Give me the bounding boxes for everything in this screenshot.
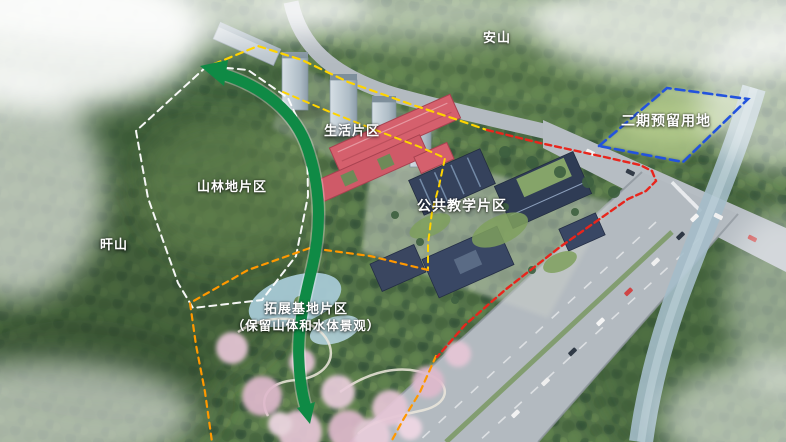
label-expansion-zone-title: 拓展基地片区 [232, 300, 381, 318]
campus-masterplan-aerial-rendering: 安山 二期预留用地 生活片区 山林地片区 旰山 公共教学片区 拓展基地片区 （保… [0, 0, 786, 442]
masterplan-scene [0, 0, 786, 442]
label-mountain-ganshan: 旰山 [100, 236, 128, 254]
label-mountain-anshan: 安山 [483, 29, 511, 47]
label-teaching-zone: 公共教学片区 [417, 197, 507, 216]
label-expansion-zone-note: （保留山体和水体景观） [232, 317, 381, 334]
label-forest-zone: 山林地片区 [197, 178, 267, 196]
label-expansion-zone: 拓展基地片区 （保留山体和水体景观） [232, 300, 381, 334]
label-living-zone: 生活片区 [324, 122, 380, 140]
label-phase2-reserved: 二期预留用地 [621, 112, 711, 131]
